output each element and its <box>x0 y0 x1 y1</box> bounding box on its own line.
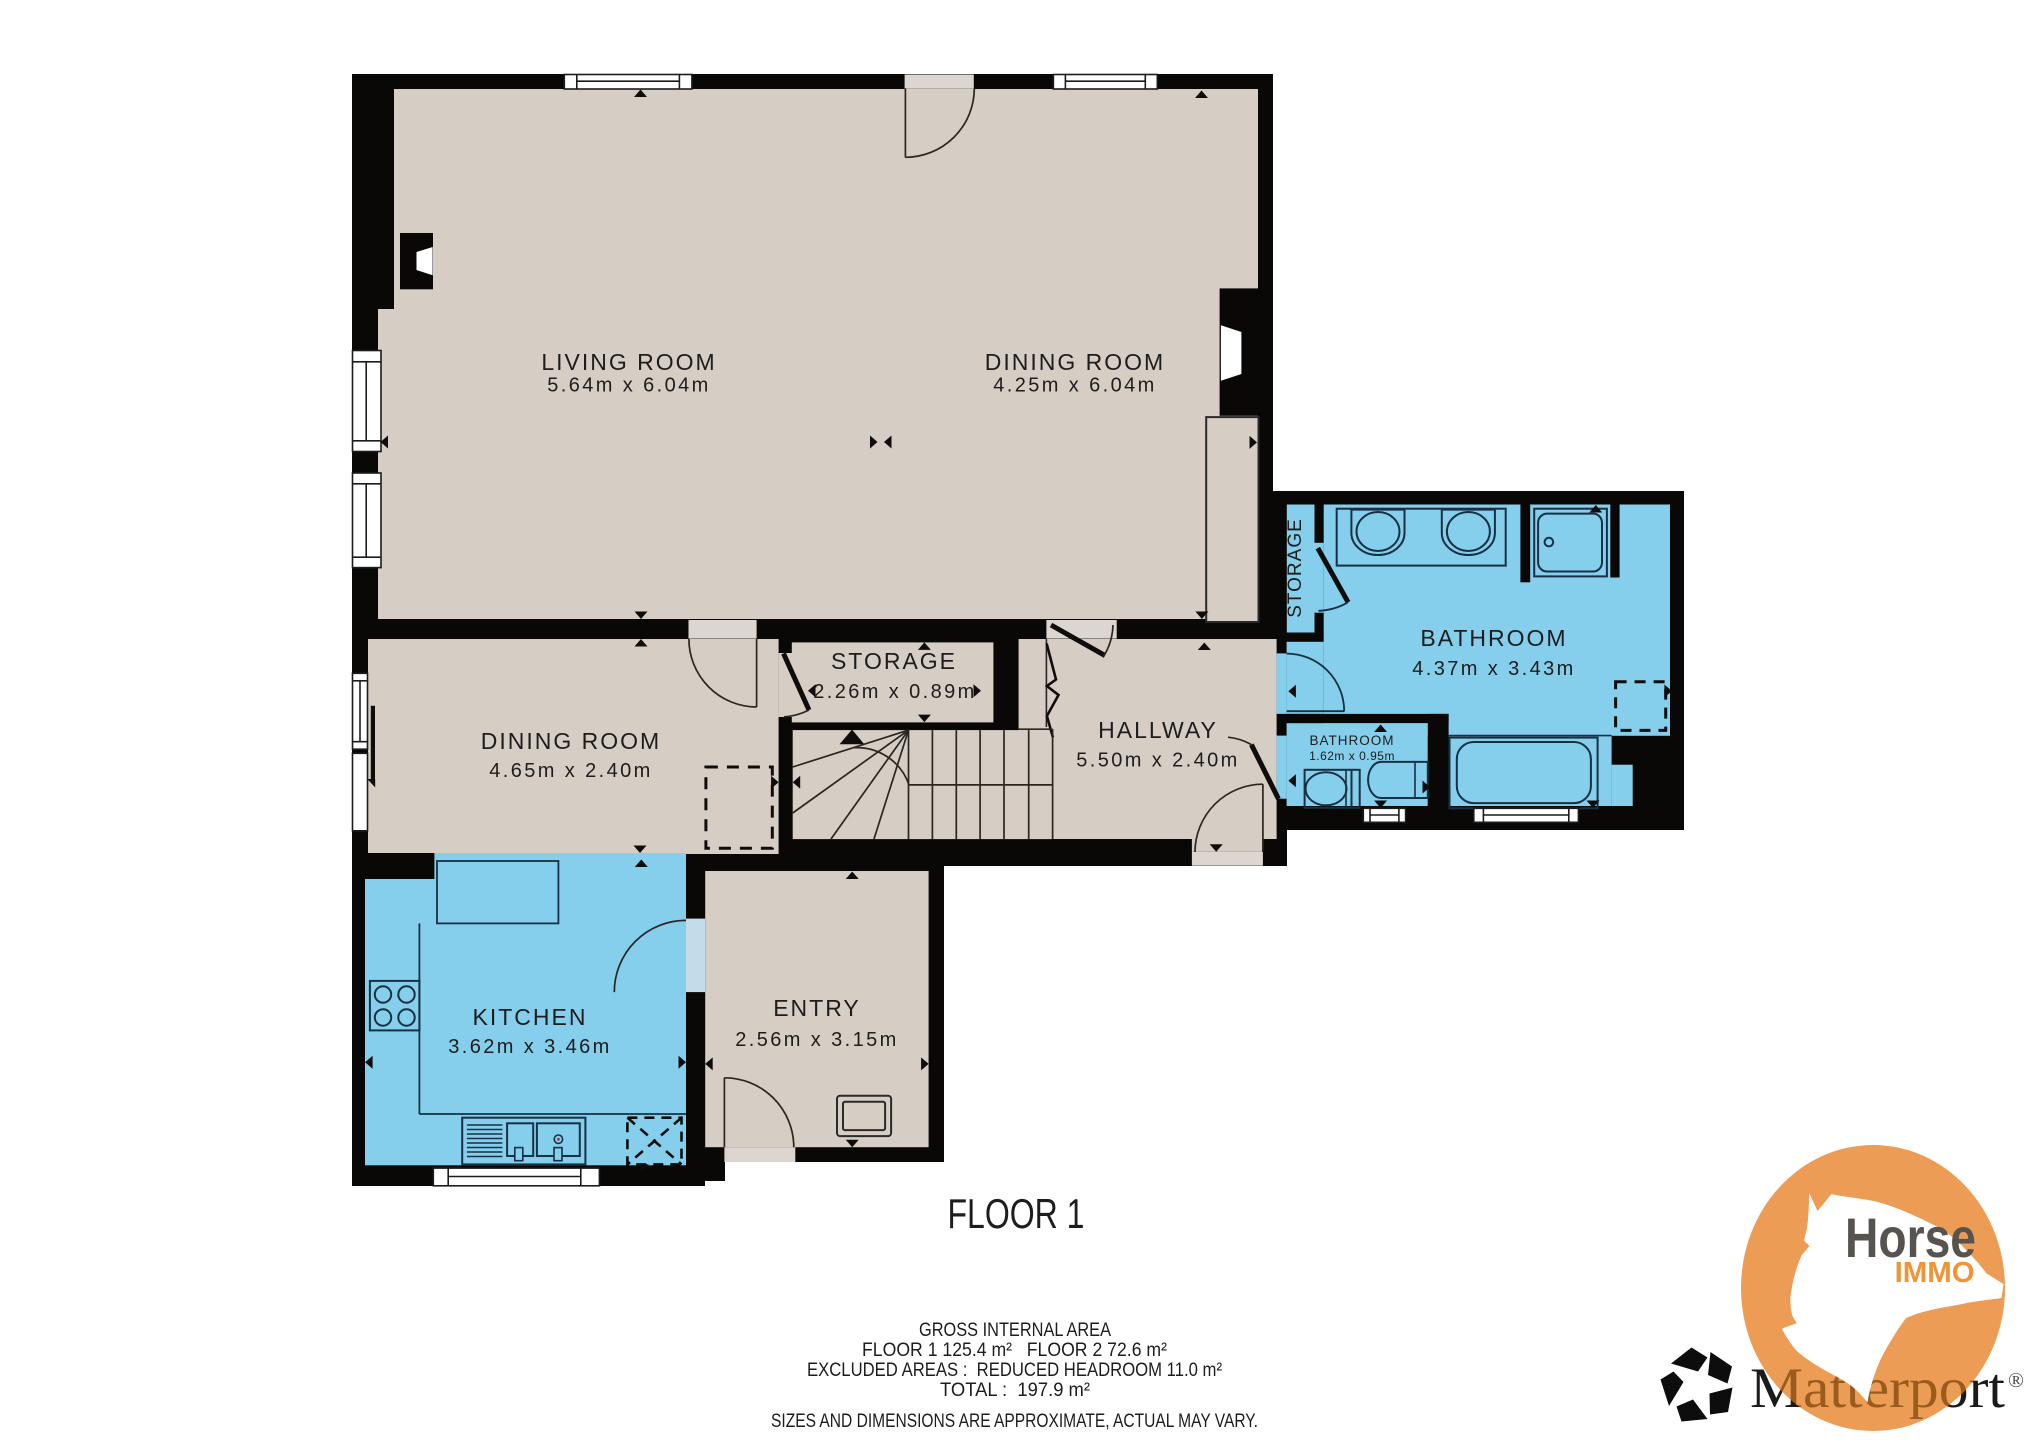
svg-text:FLOOR 1: FLOOR 1 <box>948 1190 1085 1237</box>
svg-text:DINING ROOM: DINING ROOM <box>985 349 1165 375</box>
svg-text:FLOOR 1 125.4 m² FLOOR 2 72.: FLOOR 1 125.4 m² FLOOR 2 72.6 m² <box>862 1340 1167 1361</box>
svg-text:3.62m x 3.46m: 3.62m x 3.46m <box>448 1036 612 1058</box>
svg-text:BATHROOM: BATHROOM <box>1310 733 1395 748</box>
svg-text:TOTAL : 197.9 m²: TOTAL : 197.9 m² <box>940 1380 1090 1401</box>
svg-text:LIVING ROOM: LIVING ROOM <box>541 349 716 375</box>
svg-text:®: ® <box>2008 1368 2024 1392</box>
svg-text:KITCHEN: KITCHEN <box>473 1004 588 1030</box>
svg-text:5.64m x 6.04m: 5.64m x 6.04m <box>547 375 711 397</box>
svg-text:STORAGE: STORAGE <box>1285 518 1306 618</box>
svg-text:BATHROOM: BATHROOM <box>1420 625 1567 651</box>
svg-text:1.62m x 0.95m: 1.62m x 0.95m <box>1309 749 1395 763</box>
svg-text:HALLWAY: HALLWAY <box>1098 717 1218 743</box>
svg-text:4.37m x 3.43m: 4.37m x 3.43m <box>1412 658 1576 680</box>
svg-text:4.25m x 6.04m: 4.25m x 6.04m <box>993 375 1157 397</box>
svg-text:2.26m x 0.89m: 2.26m x 0.89m <box>813 681 977 703</box>
svg-text:5.50m x 2.40m: 5.50m x 2.40m <box>1076 750 1240 772</box>
svg-text:EXCLUDED AREAS : REDUCED HEAD: EXCLUDED AREAS : REDUCED HEADROOM 11.0 m… <box>807 1360 1222 1381</box>
svg-text:STORAGE: STORAGE <box>831 648 957 674</box>
svg-text:GROSS INTERNAL AREA: GROSS INTERNAL AREA <box>919 1320 1111 1341</box>
svg-text:4.65m x 2.40m: 4.65m x 2.40m <box>489 760 653 782</box>
svg-text:IMMO: IMMO <box>1895 1257 1975 1289</box>
svg-text:SIZES AND DIMENSIONS ARE APPRO: SIZES AND DIMENSIONS ARE APPROXIMATE, AC… <box>771 1411 1258 1432</box>
svg-text:DINING ROOM: DINING ROOM <box>481 728 661 754</box>
svg-text:ENTRY: ENTRY <box>773 995 861 1021</box>
svg-text:2.56m x 3.15m: 2.56m x 3.15m <box>735 1029 899 1051</box>
